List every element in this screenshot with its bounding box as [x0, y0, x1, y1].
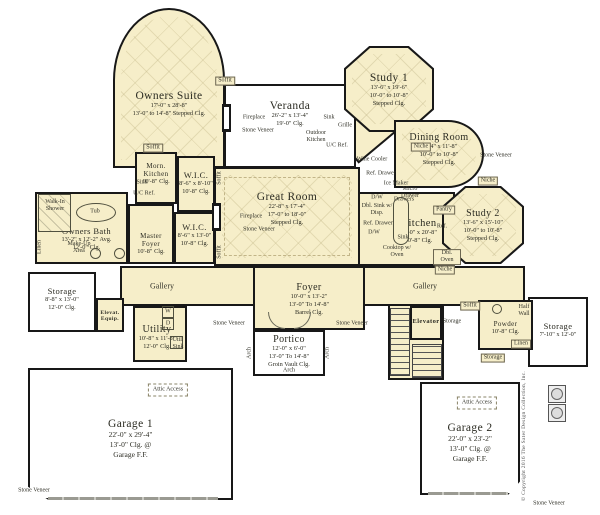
- washer-callout: W: [165, 309, 171, 316]
- room-ceiling: 10'-0" to 10'-8": [346, 92, 432, 100]
- room-name: Garage 2: [422, 422, 518, 434]
- linen-callout: Linen: [511, 340, 531, 349]
- room-name: Storage: [30, 286, 94, 296]
- stone-veneer-callout: Stone Veneer: [242, 128, 274, 135]
- room-ceiling: 13'-0" Clg. @: [30, 440, 231, 450]
- powder-toilet: [492, 304, 502, 314]
- room-elevator-equipment: Elevat. Equip.: [96, 298, 124, 332]
- soffit-callout: Soffit: [460, 302, 480, 311]
- staircase-lower-run: [412, 344, 442, 378]
- room-name: Veranda: [226, 100, 354, 112]
- room-dims: 17'-4" x 11'-8": [396, 143, 482, 151]
- dbl-oven-callout: Dbl. Oven: [433, 249, 461, 265]
- room-ceiling: 13'-0" to 14'-8" Stepped Clg.: [115, 110, 223, 118]
- room-ceiling-2: Stepped Clg.: [346, 100, 432, 108]
- room-ceiling: 13'-0" To 14'-8": [255, 353, 323, 361]
- room-ceiling: 10'-0" to 10'-8": [444, 227, 522, 235]
- garage-1-door: [48, 497, 218, 500]
- room-dining-room: Dining Room 17'-4" x 11'-8" 10'-0" to 10…: [394, 120, 484, 188]
- sink-callout: Sink: [397, 235, 408, 242]
- soffit-callout: Soffit: [217, 245, 224, 259]
- room-dims: 10'-0" x 13'-2": [255, 293, 363, 301]
- make-up-area-callout: Make-Up Area: [62, 241, 96, 255]
- fireplace-callout: Fireplace: [240, 214, 262, 221]
- niche-callout: Niche: [478, 177, 498, 186]
- soffit-callout: Soffit: [217, 171, 224, 185]
- uc-ref-callout: U/C Ref.: [326, 143, 348, 150]
- room-dims: 13'-6" x 15'-10": [444, 219, 522, 227]
- grille-callout: Grille: [338, 123, 352, 130]
- ac-unit-1: [548, 385, 566, 403]
- room-veranda: Veranda 26'-2" x 13'-4" 19'-0" Clg.: [224, 84, 356, 168]
- room-name: Dining Room: [396, 132, 482, 143]
- room-ceiling: 13'-0" Clg. @: [422, 444, 518, 454]
- ref-drawer-callout: Ref. Drawer: [366, 171, 396, 178]
- room-gallery-left-label: Gallery: [150, 281, 174, 290]
- attic-access-box-1: Attic Access: [148, 384, 188, 397]
- room-dims: 8'-8" x 13'-0": [30, 296, 94, 304]
- room-elevator: Elevator: [410, 306, 442, 340]
- half-wall-callout: Half Wall: [515, 304, 533, 318]
- room-dims: 8'-6" x 8'-10": [179, 180, 213, 188]
- room-name: Study 2: [444, 208, 522, 219]
- linen-callout: Linen: [37, 240, 44, 254]
- ceiling-lines: [121, 16, 217, 160]
- floor-plan: Owners Suite 17'-0" x 28'-8" 13'-0" to 1…: [0, 0, 600, 515]
- stone-veneer-callout: Stone Veneer: [533, 501, 565, 508]
- room-dims: 13'-6" x 19'-6": [346, 84, 432, 92]
- room-name: Elevat. Equip.: [98, 310, 122, 322]
- room-ceiling-2: Garage F.F.: [422, 454, 518, 464]
- room-ceiling: 13'-0" To 14'-8": [255, 301, 363, 309]
- vanity-sink-2: [114, 248, 125, 259]
- room-wic-1: W.I.C. 8'-6" x 8'-10" 10'-8" Clg.: [177, 156, 215, 212]
- sink-callout: Sink: [136, 180, 147, 187]
- room-master-foyer: Master Foyer 10'-8" Clg.: [128, 204, 174, 264]
- attic-access-box-2: Attic Access: [457, 397, 497, 410]
- cooktop-callout: Cooktop w/ Oven: [380, 245, 414, 259]
- room-garage-1: Garage 1 22'-0" x 29'-4" 13'-0" Clg. @ G…: [28, 368, 233, 500]
- room-name: Study 1: [346, 72, 432, 84]
- util-sink-callout: Util. Sink: [169, 337, 187, 351]
- room-ceiling: 10'-0" to 10'-8": [396, 151, 482, 159]
- ac-unit-2: [548, 404, 566, 422]
- fireplace-callout: Fireplace: [243, 115, 265, 122]
- room-name: W.I.C.: [176, 222, 213, 232]
- room-dims: 22'-0" x 23'-2": [422, 434, 518, 444]
- room-storage-right: Storage 7'-10" x 12'-0": [528, 297, 588, 367]
- tub-callout: Tub: [90, 209, 99, 216]
- staircase-left-run: [390, 308, 410, 376]
- room-utility: Utility 10'-8" x 11'-8" 12'-0" Clg.: [133, 306, 187, 362]
- room-name: Portico: [255, 334, 323, 345]
- stone-veneer-callout: Stone Veneer: [243, 227, 275, 234]
- room-name: Garage 1: [30, 418, 231, 430]
- ceiling-lines: [402, 128, 476, 180]
- niche-callout: Niche: [411, 143, 431, 152]
- arch-callout: Arch: [283, 368, 295, 375]
- ref-callout: Ref.: [437, 224, 447, 231]
- soffit-callout: Soffit: [215, 77, 235, 86]
- room-dims: 7'-10" x 12'-0": [530, 331, 586, 339]
- stone-veneer-callout: Stone Veneer: [18, 488, 50, 495]
- dryer-callout: D: [166, 321, 170, 328]
- dbl-sink-callout: Dbl. Sink w/ Disp.: [360, 203, 394, 217]
- room-gallery-right-label: Gallery: [413, 281, 437, 290]
- sink-callout: Sink: [323, 115, 334, 122]
- room-dims: 8'-6" x 13'-0": [176, 232, 213, 240]
- room-wic-2: W.I.C. 8'-6" x 13'-0" 10'-8" Clg.: [174, 212, 215, 264]
- stone-veneer-callout: Stone Veneer: [336, 321, 368, 328]
- room-name: Morn. Kitchen: [137, 162, 175, 178]
- stone-veneer-callout: Stone Veneer: [480, 153, 512, 160]
- room-name: Elevator: [412, 318, 440, 325]
- drawers-callout: Drawers: [394, 197, 414, 204]
- room-dims: 17'-0" x 28'-8": [115, 102, 223, 110]
- room-dims: 12'-0" x 6'-0": [255, 345, 323, 353]
- room-owners-suite: Owners Suite 17'-0" x 28'-8" 13'-0" to 1…: [113, 8, 225, 168]
- room-name: Great Room: [216, 191, 358, 203]
- room-name: Storage: [530, 321, 586, 331]
- ceiling-lines: [352, 54, 426, 124]
- room-ceiling: 10'-8" Clg.: [179, 188, 213, 196]
- niche-callout: Niche: [435, 266, 455, 275]
- room-name: Powder: [480, 320, 531, 328]
- room-ceiling: 12'-0" Clg.: [30, 304, 94, 312]
- walk-in-shower-callout: Walk-In Shower: [38, 199, 72, 213]
- pantry-callout: Pantry: [433, 206, 455, 215]
- room-name: Master Foyer: [130, 232, 172, 248]
- great-room-fireplace: [212, 203, 221, 231]
- ref-drawer-callout: Ref. Drawer: [361, 221, 395, 228]
- room-ceiling: 10'-8" Clg.: [480, 328, 531, 336]
- room-ceiling: 10'-8" Clg.: [176, 240, 213, 248]
- dishwasher-callout: D/W: [368, 230, 380, 237]
- room-name: Utility: [129, 324, 185, 335]
- room-dims: 22'-0" x 29'-4": [30, 430, 231, 440]
- room-name: Foyer: [255, 282, 363, 293]
- ceiling-lines: [450, 194, 516, 256]
- arch-callout: Arch: [325, 347, 332, 359]
- room-great-room: Great Room 22'-8" x 17'-4" 17'-0" to 18'…: [214, 167, 360, 266]
- room-storage-left: Storage 8'-8" x 13'-0" 12'-0" Clg.: [28, 272, 96, 332]
- storage-under-stairs-label: Storage: [443, 319, 461, 326]
- stone-veneer-callout: Stone Veneer: [213, 321, 245, 328]
- room-ceiling-2: Stepped Clg.: [396, 159, 482, 167]
- room-ceiling-2: Stepped Clg.: [216, 219, 358, 227]
- wine-cooler-callout: Wine Cooler: [357, 157, 388, 164]
- storage-small-label: Storage: [481, 354, 505, 363]
- room-name: W.I.C.: [179, 170, 213, 180]
- room-ceiling: 10'-8" Clg.: [130, 248, 172, 256]
- room-ceiling: 17'-0" to 18'-0": [216, 211, 358, 219]
- uc-ref-callout: U/C Ref.: [133, 191, 155, 198]
- room-ceiling-2: Garage F.F.: [30, 450, 231, 460]
- copyright-text: © Copyright 2016 The Sater Design Collec…: [521, 371, 527, 501]
- soffit-callout: Soffit: [143, 144, 163, 153]
- room-name: Owners Suite: [115, 90, 223, 102]
- garage-2-door: [428, 492, 508, 495]
- room-dims: 22'-8" x 17'-4": [216, 203, 358, 211]
- veranda-fireplace: [222, 104, 231, 132]
- arch-callout: Arch: [247, 347, 254, 359]
- dishwasher-callout: D/W: [371, 195, 383, 202]
- room-ceiling-2: Stepped Clg.: [444, 235, 522, 243]
